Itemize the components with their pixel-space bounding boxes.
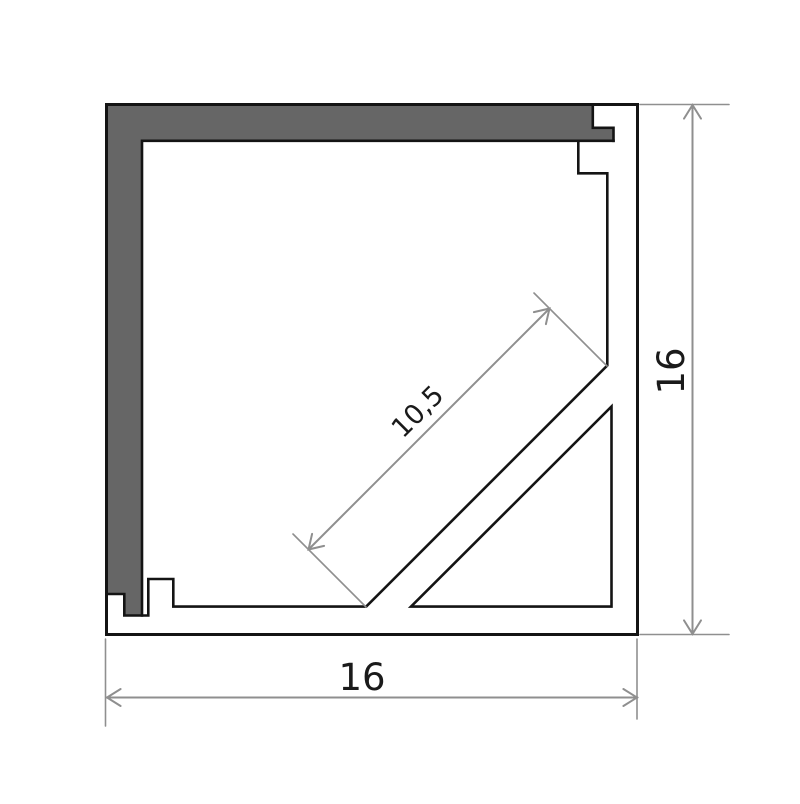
outer-square <box>107 105 638 635</box>
technical-drawing-canvas: 16 16 10,5 <box>0 0 800 800</box>
dim-bottom-label: 16 <box>338 656 385 699</box>
dim-right-label: 16 <box>650 347 693 394</box>
